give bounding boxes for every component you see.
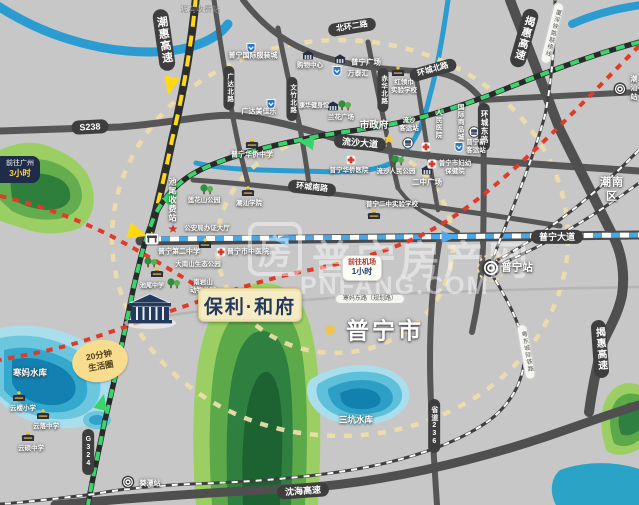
poi-label-yunlou-primary: 云楼小学 bbox=[10, 405, 36, 413]
poi-label-people-hospital: 人民医院 bbox=[433, 109, 441, 139]
water-label-hanma: 寒妈水库 bbox=[13, 368, 47, 379]
poi-label-city-gov: 市政府 bbox=[360, 120, 389, 132]
district-label: 潮南区 bbox=[599, 176, 626, 204]
poi-label-kanghua-gym: 康华健身馆 bbox=[299, 103, 329, 111]
toll-label-chiwei: 池尾收费站 bbox=[167, 178, 177, 223]
badge-guangzhou-line2: 3小时 bbox=[4, 168, 36, 179]
station-label-kuitan: 葵潭站 bbox=[140, 481, 161, 490]
poi-label-liusha-bus: 流沙 客运站 bbox=[399, 117, 419, 133]
poi-label-lianhuashan: 莲花山公园 bbox=[188, 197, 221, 205]
poi-label-no2-middle: 普宁第二中学 bbox=[158, 249, 200, 258]
poi-label-chiwei-middle: 池尾中学 bbox=[140, 283, 164, 291]
poi-label-yunluo-middle: 云落中学 bbox=[33, 423, 59, 431]
road-pill-chaohui: 潮惠高速 bbox=[152, 8, 177, 72]
project-logo-text: 保利·和府 bbox=[204, 292, 296, 319]
poi-label-police-hall: 公安局办证大厅 bbox=[184, 225, 230, 233]
poi-label-liusha-park: 流沙人民公园 bbox=[377, 168, 416, 176]
location-map: 房 普宁房产网 PNFANG.COM 泥沟收费站 池尾收费站 潮惠高速 揭惠高速… bbox=[0, 0, 639, 505]
road-pill-huancheng-south: 环城南路 bbox=[287, 179, 336, 197]
poi-label-yunshuo-middle: 云硕中学 bbox=[18, 445, 44, 453]
railway-pill-xiashen-link: 厦深铁路联络线 bbox=[539, 1, 565, 65]
poi-label-puning-plaza: 普宁广场 bbox=[351, 57, 381, 66]
road-pill-beihuan: 北环二路 bbox=[327, 17, 376, 37]
road-pill-jiehui-top: 揭惠高速 bbox=[508, 7, 539, 69]
city-label: 普宁市 bbox=[346, 317, 424, 346]
badge-guangzhou-line1: 前往广州 bbox=[4, 159, 36, 168]
label-layer: 泥沟收费站 池尾收费站 潮惠高速 揭惠高速 揭惠高速 沈海高速 S238 北环二… bbox=[0, 0, 639, 505]
poi-label-tcm-hospital: 普宁市中医院 bbox=[227, 249, 269, 258]
poi-label-chaoshan-college: 潮汕学院 bbox=[236, 200, 262, 208]
station-label-chaoshan: 潮汕站 bbox=[629, 76, 639, 102]
poi-label-clothing-city: 普宁国际服装城 bbox=[229, 53, 278, 62]
poi-label-overseas-hospital: 普宁华侨医院 bbox=[330, 167, 369, 175]
road-pill-s238: S238 bbox=[71, 119, 109, 135]
poi-label-wantaihui: 万泰汇 bbox=[348, 71, 369, 80]
road-pill-sd236: 省道236 bbox=[428, 399, 440, 453]
road-pill-hanma-east: 寒妈东路（规划路） bbox=[335, 294, 405, 304]
road-pill-puning-avenue: 普宁大道 bbox=[531, 230, 583, 244]
badge-airport: 前往机场 1小时 bbox=[342, 255, 382, 281]
poi-label-nanshan-park: 大南山生态公园 bbox=[175, 261, 221, 269]
poi-label-fuyou-hospital: 普宁市妇幼 保健院 bbox=[439, 160, 472, 176]
poi-label-erzhong-exp: 普宁二中实验学校 bbox=[366, 201, 418, 209]
project-logo-plate: 保利·和府 bbox=[198, 288, 302, 322]
badge-life-circle: 20分钟 生活圈 bbox=[69, 335, 131, 386]
railway-pill-yuedong: 粤东城际铁路 bbox=[516, 324, 536, 381]
road-pill-shenhai: 沈海高速 bbox=[277, 482, 330, 500]
road-pill-guangda-north: 广达北路 bbox=[223, 66, 234, 110]
poi-label-lanhua-plaza: 兰花广场 bbox=[328, 114, 354, 122]
poi-label-intl-commodity: 国际商品城 bbox=[455, 103, 463, 141]
road-pill-g324: G324 bbox=[82, 429, 94, 475]
poi-label-shopping-center: 购物中心 bbox=[297, 62, 323, 70]
badge-guangzhou: 前往广州 3小时 bbox=[0, 156, 40, 183]
road-pill-liusha-avenue: 流沙大道 bbox=[333, 134, 386, 153]
badge-airport-line2: 1小时 bbox=[348, 267, 376, 278]
station-label-puning: 普宁站 bbox=[501, 261, 533, 274]
poi-label-overseas-middle: 普宁华侨中学 bbox=[231, 152, 273, 161]
poi-label-guangda-mall: 广达美佳乐 bbox=[242, 109, 277, 118]
toll-label-nigou: 泥沟收费站 bbox=[180, 5, 220, 15]
poi-label-erzhong-plaza: 二中广场 bbox=[412, 177, 442, 186]
water-label-sankeng: 三坑水库 bbox=[339, 415, 373, 426]
poi-label-honglingjin: 红领巾 实验学校 bbox=[391, 79, 417, 95]
road-pill-chihua-north: 赤华北路 bbox=[377, 68, 388, 112]
road-pill-wenzhu-north: 文竹北路 bbox=[286, 77, 297, 121]
poi-label-new-bus: 普宁新 客运站 bbox=[466, 139, 486, 155]
road-pill-jiehui-bottom: 揭惠高速 bbox=[590, 320, 609, 379]
